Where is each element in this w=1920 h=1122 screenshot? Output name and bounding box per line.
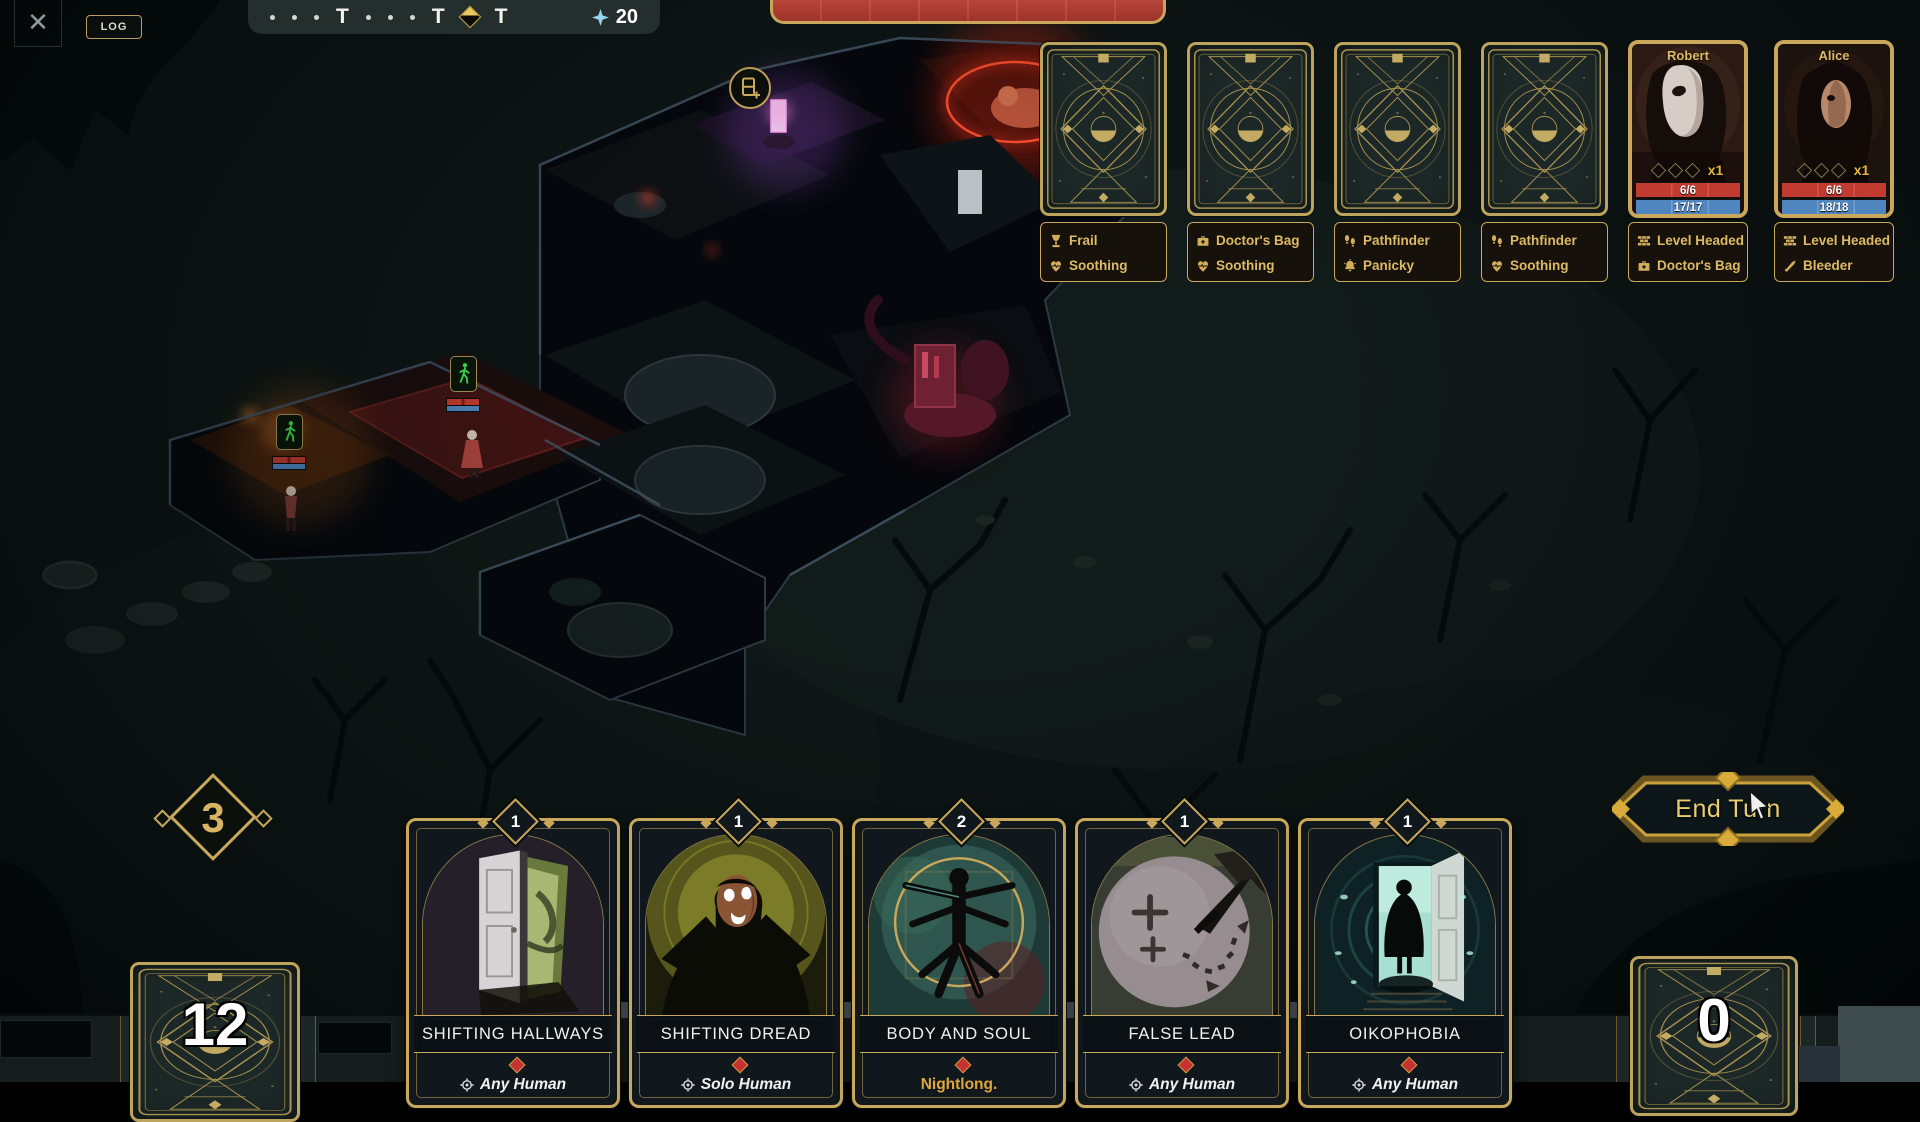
card-title: SHIFTING DREAD bbox=[637, 1015, 835, 1053]
hand-card-false-lead[interactable]: 1 FALSE LEAD Any Human bbox=[1075, 818, 1289, 1108]
turn-marker: T bbox=[495, 2, 508, 32]
threat-segment bbox=[1067, 0, 1116, 21]
card-art-false-lead bbox=[1091, 834, 1273, 1020]
character-card-alice[interactable]: Alice x1 6/6 18/18 bbox=[1774, 40, 1894, 218]
card-target: Any Human bbox=[1301, 1073, 1509, 1097]
unit-bars bbox=[272, 456, 306, 470]
card-title: FALSE LEAD bbox=[1083, 1015, 1281, 1053]
trait-label: Panicky bbox=[1363, 258, 1414, 273]
close-button[interactable]: ✕ bbox=[14, 0, 62, 47]
slot-diamond bbox=[1667, 162, 1683, 178]
unit-sanity-bar bbox=[272, 464, 306, 470]
brick-wall-icon bbox=[1637, 234, 1651, 248]
soothing-heart-icon bbox=[1196, 259, 1210, 273]
sparkle-icon bbox=[592, 9, 609, 26]
end-turn-label: End Turn bbox=[1612, 772, 1844, 846]
draw-pile-count: 12 bbox=[130, 990, 300, 1059]
turn-dot bbox=[366, 15, 371, 20]
threat-segment bbox=[1116, 0, 1163, 21]
enemy-traits-3: Pathfinder Panicky bbox=[1334, 222, 1461, 282]
trait-label: Soothing bbox=[1510, 258, 1568, 273]
enemy-card-1[interactable] bbox=[1040, 42, 1167, 216]
brick-wall-icon bbox=[1783, 234, 1797, 248]
action-points-value: 3 bbox=[185, 789, 241, 845]
slot-multiplier: x1 bbox=[1854, 162, 1870, 178]
cost-flank-diamond bbox=[1146, 817, 1157, 828]
turn-order-bar: TTT 20 bbox=[248, 0, 660, 34]
character-traits-alice: Level Headed Bleeder bbox=[1774, 222, 1894, 282]
cost-flank-diamond bbox=[923, 817, 934, 828]
enemy-traits-4: Pathfinder Soothing bbox=[1481, 222, 1608, 282]
card-plus-icon bbox=[738, 76, 762, 100]
turn-dot bbox=[388, 15, 393, 20]
cost-flank-diamond bbox=[477, 817, 488, 828]
slot-diamond bbox=[1830, 162, 1846, 178]
cost-flank-diamond bbox=[1369, 817, 1380, 828]
turn-marker: T bbox=[432, 2, 445, 32]
turn-dot bbox=[270, 15, 275, 20]
trait-label: Doctor's Bag bbox=[1216, 233, 1299, 248]
cost-flank-diamond bbox=[1212, 817, 1223, 828]
walking-icon bbox=[280, 420, 300, 444]
unit-sanity-bar bbox=[446, 406, 480, 412]
card-art-shifting-dread bbox=[645, 834, 827, 1020]
card-target: Solo Human bbox=[632, 1073, 840, 1097]
walking-icon bbox=[454, 362, 474, 386]
trait-label: Level Headed bbox=[1657, 233, 1744, 248]
doctors-bag-icon bbox=[1637, 259, 1651, 273]
hand-card-shifting-dread[interactable]: 1 SHIFTING DREAD Solo Human bbox=[629, 818, 843, 1108]
hand-card-shifting-hallways[interactable]: 1 SHIFTING HALLWAYS Any Human bbox=[406, 818, 620, 1108]
cost-flank-diamond bbox=[543, 817, 554, 828]
hp-bar: 6/6 bbox=[1635, 182, 1741, 198]
target-icon bbox=[1129, 1078, 1143, 1092]
turn-order-items: TTT bbox=[270, 2, 507, 32]
threat-segment bbox=[871, 0, 920, 21]
turn-dot bbox=[410, 15, 415, 20]
trait-label: Pathfinder bbox=[1510, 233, 1577, 248]
map-deck-marker[interactable] bbox=[729, 67, 771, 109]
card-art-shifting-hallways bbox=[422, 834, 604, 1020]
resource-value: 20 bbox=[616, 6, 638, 29]
trait-label: Level Headed bbox=[1803, 233, 1890, 248]
game-screen: { "ui_colors": {"gold":"#c9a85c","text_g… bbox=[0, 0, 1920, 1080]
trait-label: Bleeder bbox=[1803, 258, 1853, 273]
slot-diamond bbox=[1650, 162, 1666, 178]
log-button[interactable]: LOG bbox=[86, 15, 142, 39]
threat-segment bbox=[822, 0, 871, 21]
soothing-heart-icon bbox=[1049, 259, 1063, 273]
slot-multiplier: x1 bbox=[1708, 162, 1724, 178]
goblet-icon bbox=[1049, 234, 1063, 248]
threat-segment bbox=[969, 0, 1018, 21]
card-target: Any Human bbox=[1078, 1073, 1286, 1097]
cost-flank-diamond bbox=[766, 817, 777, 828]
cost-flank-diamond bbox=[700, 817, 711, 828]
enemy-card-3[interactable] bbox=[1334, 42, 1461, 216]
threat-segment bbox=[773, 0, 822, 21]
slot-row: x1 bbox=[1632, 162, 1744, 178]
enemy-traits-2: Doctor's Bag Soothing bbox=[1187, 222, 1314, 282]
turn-dot bbox=[292, 15, 297, 20]
resource-counter: 20 bbox=[592, 6, 638, 29]
alarm-bell-icon bbox=[1343, 259, 1357, 273]
slot-diamond bbox=[1813, 162, 1829, 178]
trait-label: Doctor's Bag bbox=[1657, 258, 1740, 273]
hand-card-body-and-soul[interactable]: 2 BODY AND SOUL Nightlong. bbox=[852, 818, 1066, 1108]
threat-segment bbox=[920, 0, 969, 21]
end-turn-button[interactable]: End Turn bbox=[1612, 772, 1844, 846]
card-target: Any Human bbox=[409, 1073, 617, 1097]
discard-pile-count: 0 bbox=[1630, 986, 1798, 1055]
slot-row: x1 bbox=[1778, 162, 1890, 178]
stone-step bbox=[1838, 1006, 1920, 1082]
sanity-bar: 18/18 bbox=[1781, 199, 1887, 215]
card-title: OIKOPHOBIA bbox=[1306, 1015, 1504, 1053]
card-duration: Nightlong. bbox=[855, 1073, 1063, 1097]
character-name: Alice bbox=[1778, 48, 1890, 63]
unit-status-badge bbox=[276, 414, 303, 450]
unit-status-badge bbox=[450, 356, 477, 392]
enemy-card-2[interactable] bbox=[1187, 42, 1314, 216]
character-name: Robert bbox=[1632, 48, 1744, 63]
card-title: SHIFTING HALLWAYS bbox=[414, 1015, 612, 1053]
soothing-heart-icon bbox=[1490, 259, 1504, 273]
unit-hp-bar bbox=[446, 398, 480, 406]
enemy-traits-1: Frail Soothing bbox=[1040, 222, 1167, 282]
doctors-bag-icon bbox=[1196, 234, 1210, 248]
slot-diamond bbox=[1796, 162, 1812, 178]
target-icon bbox=[1352, 1078, 1366, 1092]
hp-bar: 6/6 bbox=[1781, 182, 1887, 198]
target-icon bbox=[681, 1078, 695, 1092]
cost-flank-diamond bbox=[1435, 817, 1446, 828]
sanity-bar: 17/17 bbox=[1635, 199, 1741, 215]
threat-progress-bar bbox=[770, 0, 1166, 24]
enemy-card-4[interactable] bbox=[1481, 42, 1608, 216]
card-title: BODY AND SOUL bbox=[860, 1015, 1058, 1053]
turn-dot bbox=[314, 15, 319, 20]
trait-label: Pathfinder bbox=[1363, 233, 1430, 248]
character-card-robert[interactable]: Robert x1 6/6 17/17 bbox=[1628, 40, 1748, 218]
cost-flank-diamond bbox=[989, 817, 1000, 828]
footprints-icon bbox=[1490, 234, 1504, 248]
trait-label: Soothing bbox=[1216, 258, 1274, 273]
current-turn-marker bbox=[458, 6, 481, 29]
unit-hp-bar bbox=[272, 456, 306, 464]
trait-label: Frail bbox=[1069, 233, 1098, 248]
trait-label: Soothing bbox=[1069, 258, 1127, 273]
card-art-body-and-soul bbox=[868, 834, 1050, 1020]
turn-marker: T bbox=[336, 2, 349, 32]
unit-bars bbox=[446, 398, 480, 412]
slot-diamond bbox=[1684, 162, 1700, 178]
character-traits-robert: Level Headed Doctor's Bag bbox=[1628, 222, 1748, 282]
knife-icon bbox=[1783, 259, 1797, 273]
hand-card-oikophobia[interactable]: 1 OIKOPHOBIA Any Human bbox=[1298, 818, 1512, 1108]
card-art-oikophobia bbox=[1314, 834, 1496, 1020]
footprints-icon bbox=[1343, 234, 1357, 248]
threat-segment bbox=[1018, 0, 1067, 21]
target-icon bbox=[460, 1078, 474, 1092]
